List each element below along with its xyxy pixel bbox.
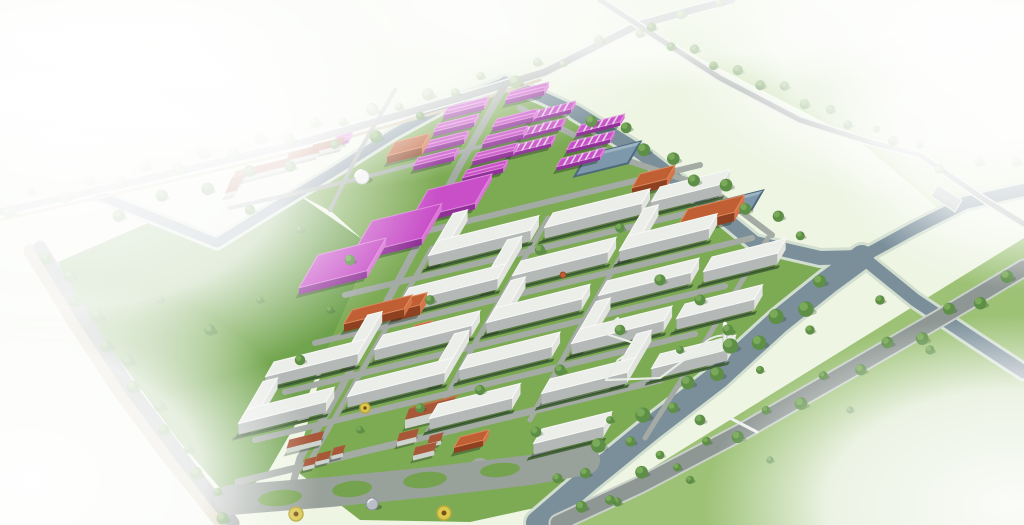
tree-crown-highlight (753, 336, 761, 344)
tree-crown-highlight (536, 245, 542, 251)
tree-crown-highlight (975, 298, 982, 305)
tree-crown-highlight (757, 366, 761, 370)
tree-crown-highlight (876, 296, 881, 301)
tree-crown-highlight (695, 415, 701, 421)
tree-crown-highlight (636, 467, 643, 474)
tree-crown-highlight (607, 417, 611, 421)
tree-crown-highlight (296, 355, 302, 361)
tree-crown-highlight (531, 427, 537, 433)
tree-crown-highlight (426, 296, 431, 301)
tree-crown-highlight (476, 385, 482, 391)
tree-crown-highlight (686, 476, 691, 481)
tree-crown-highlight (615, 325, 621, 331)
tree-crown-highlight (416, 404, 421, 409)
tree-crown-highlight (668, 403, 674, 409)
tree-crown-highlight (740, 204, 746, 210)
tree-crown-highlight (711, 368, 719, 376)
tree-crown-highlight (703, 437, 708, 442)
tree-crown-highlight (638, 144, 645, 151)
tree-crown-highlight (622, 123, 628, 129)
tree-crown-highlight (814, 275, 821, 282)
tree-crown-highlight (616, 224, 621, 229)
architectural-rendering-stage (0, 0, 1024, 525)
yellow-feature-core (442, 511, 447, 516)
tree-crown-highlight (721, 179, 728, 186)
tree-crown-highlight (723, 325, 729, 331)
tree-crown-highlight (577, 502, 583, 508)
tree-crown-highlight (668, 153, 675, 160)
tree-crown-highlight (636, 408, 644, 416)
tree-crown-highlight (677, 346, 681, 350)
tree-crown-highlight (655, 275, 661, 281)
tree-crown-highlight (770, 310, 778, 318)
tree-crown-highlight (689, 175, 696, 182)
tree-crown-highlight (674, 464, 679, 469)
tree-crown-highlight (806, 326, 811, 331)
tree-crown-highlight (553, 474, 559, 480)
tree-crown-highlight (944, 303, 951, 310)
tree-crown-highlight (592, 439, 600, 447)
tree-crown-highlight (682, 376, 689, 383)
campus-center-dome (560, 272, 566, 278)
site-plan-figure (0, 0, 1024, 525)
tree-crown-highlight (774, 211, 780, 217)
tree-crown-highlight (581, 468, 587, 474)
tree-crown-highlight (555, 365, 561, 371)
tree-crown-highlight (796, 232, 801, 237)
site-plan-rendering (0, 0, 1024, 525)
tree-crown-highlight (626, 437, 632, 443)
tree-crown-highlight (606, 496, 611, 501)
tree-crown-highlight (656, 451, 661, 456)
tree-crown-highlight (799, 302, 808, 311)
yellow-feature-core (363, 406, 367, 410)
tree-crown-highlight (724, 339, 732, 347)
tree-crown-highlight (695, 295, 701, 301)
tree-crown-highlight (357, 427, 361, 431)
